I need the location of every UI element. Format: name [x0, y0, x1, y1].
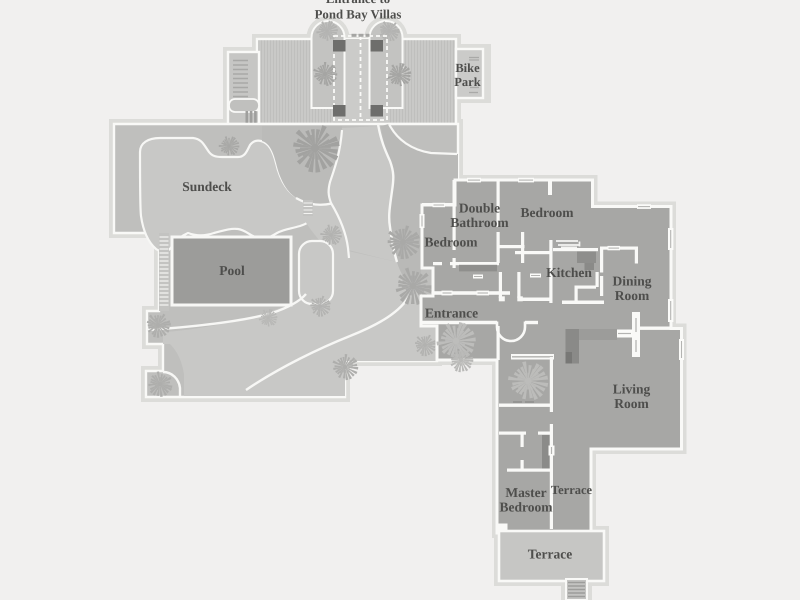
- svg-text:Sundeck: Sundeck: [182, 179, 232, 194]
- svg-text:Bedroom: Bedroom: [425, 235, 479, 250]
- svg-text:Bedroom: Bedroom: [500, 500, 554, 515]
- svg-text:Pond Bay Villas: Pond Bay Villas: [315, 8, 402, 22]
- svg-text:Bike: Bike: [455, 61, 480, 75]
- svg-text:Room: Room: [615, 288, 650, 303]
- svg-text:Room: Room: [614, 396, 649, 411]
- svg-text:Park: Park: [454, 75, 480, 89]
- svg-text:Kitchen: Kitchen: [546, 265, 592, 280]
- svg-text:Entrance: Entrance: [425, 306, 478, 321]
- svg-text:Bedroom: Bedroom: [521, 205, 575, 220]
- svg-text:Bathroom: Bathroom: [450, 215, 509, 230]
- svg-text:Terrace: Terrace: [528, 547, 572, 562]
- svg-text:Living: Living: [613, 382, 651, 397]
- svg-text:Dining: Dining: [612, 274, 651, 289]
- svg-text:Terrace: Terrace: [551, 483, 593, 497]
- svg-text:Master: Master: [505, 485, 546, 500]
- svg-text:Pool: Pool: [219, 263, 245, 278]
- svg-text:Double: Double: [459, 201, 500, 216]
- svg-text:Entrance to: Entrance to: [326, 0, 390, 6]
